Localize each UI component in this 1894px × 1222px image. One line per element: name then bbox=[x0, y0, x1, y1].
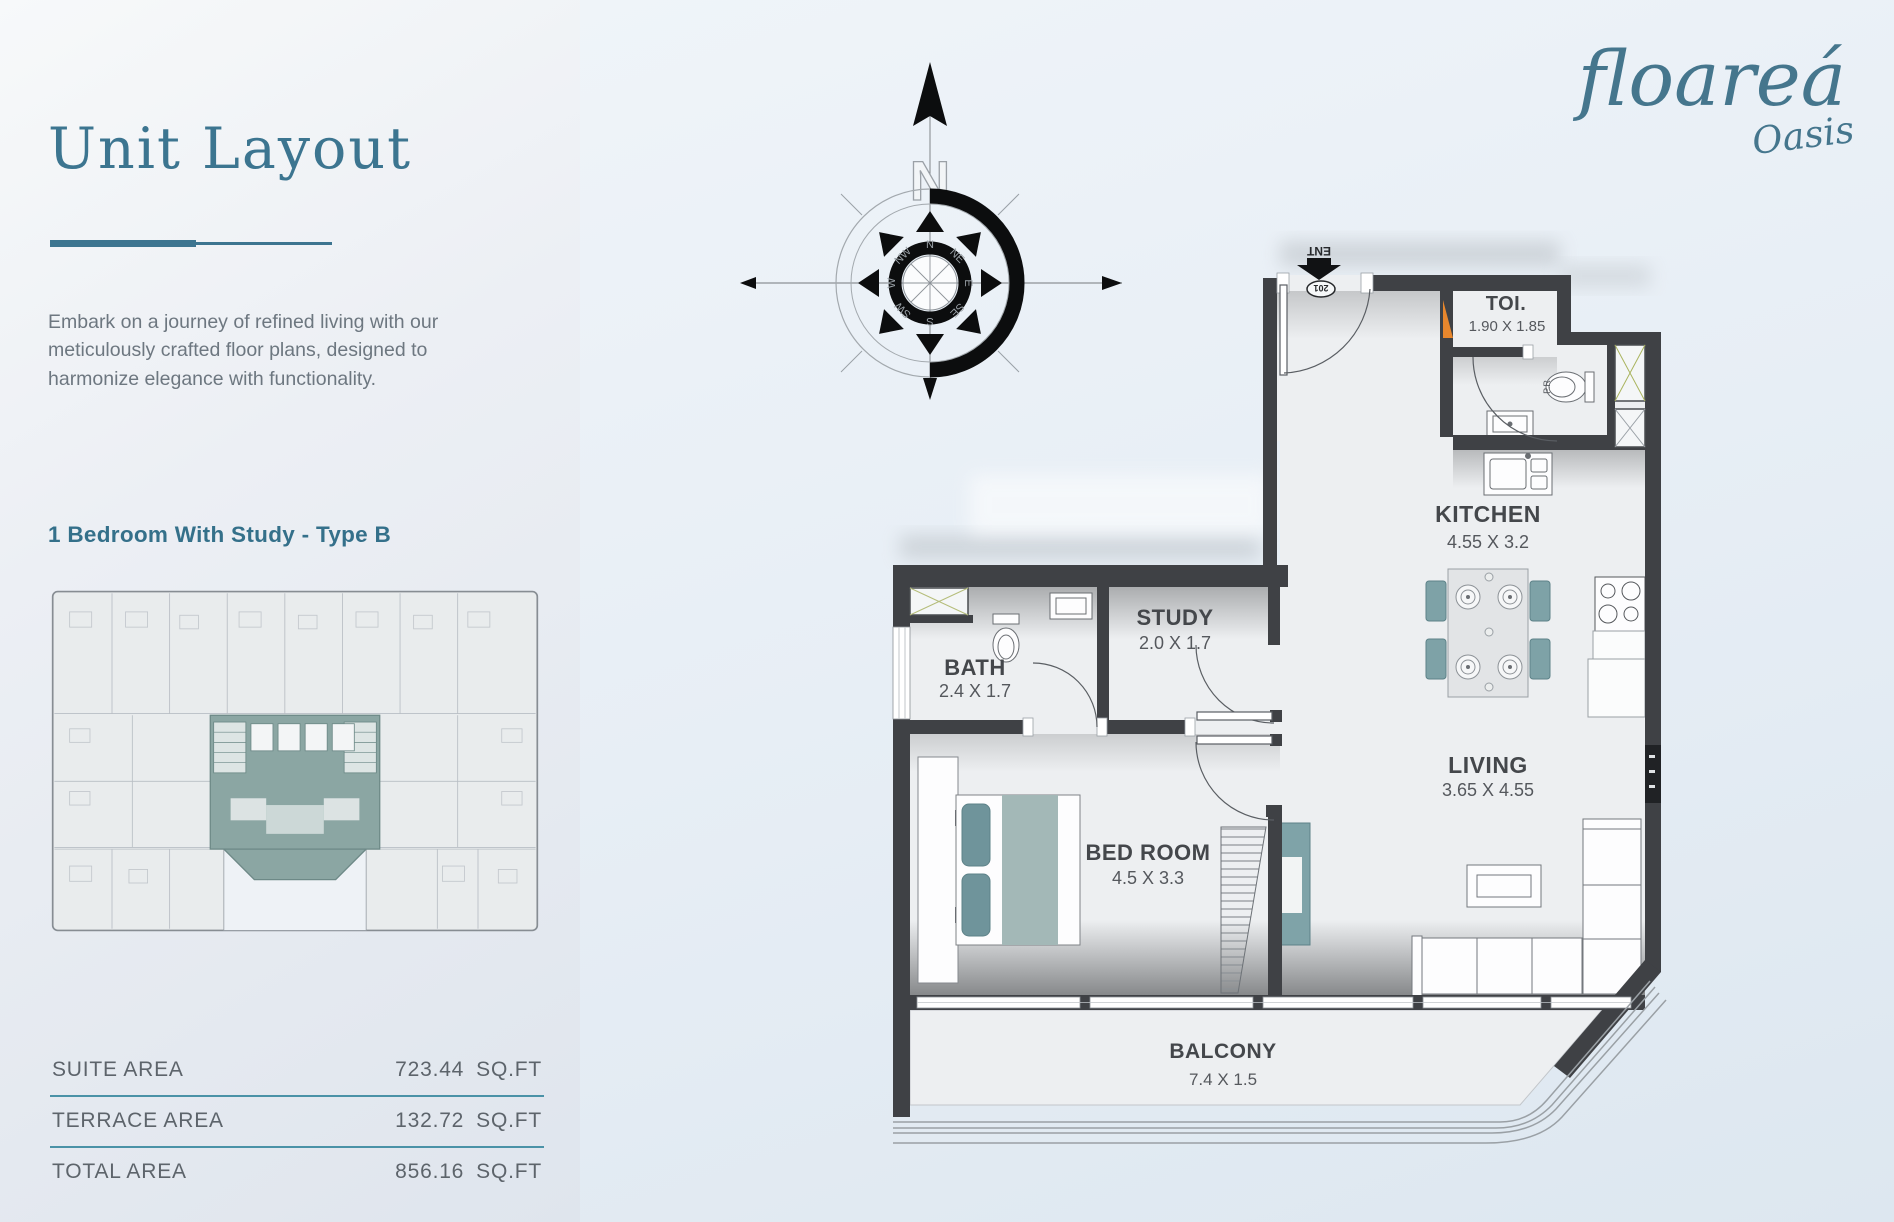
kitchen-dims: 4.55 X 3.2 bbox=[1447, 532, 1529, 552]
terrace-area-label: TERRACE AREA bbox=[52, 1109, 224, 1133]
intro-description: Embark on a journey of refined living wi… bbox=[48, 308, 500, 395]
sidebar: Unit Layout Embark on a journey of refin… bbox=[0, 0, 580, 1222]
kitchen-name: KITCHEN bbox=[1435, 501, 1541, 527]
coffee-table bbox=[1467, 865, 1541, 907]
stove bbox=[1595, 577, 1645, 631]
toi-dims: 1.90 X 1.85 bbox=[1469, 318, 1546, 335]
pr-toilet bbox=[1546, 372, 1594, 402]
kitchen-counter bbox=[1588, 631, 1645, 717]
total-area-value: 856.16 bbox=[395, 1160, 464, 1184]
pr-label: P.R bbox=[1542, 380, 1552, 394]
bath-washbasin bbox=[1050, 593, 1092, 619]
unit-floorplan: ENT 201 TOI. 1.90 X 1.85 P.R KITCHEN 4.5… bbox=[860, 225, 1720, 1215]
balcony-windows bbox=[917, 997, 1631, 1008]
unit-number-label: 201 bbox=[1313, 283, 1328, 293]
table-row-suite: SUITE AREA 723.44SQ.FT bbox=[50, 1046, 544, 1097]
suite-area-unit: SQ.FT bbox=[476, 1058, 542, 1082]
kitchen-sink bbox=[1484, 453, 1552, 495]
unit-type-heading: 1 Bedroom With Study - Type B bbox=[48, 522, 391, 548]
balcony-name: BALCONY bbox=[1169, 1040, 1276, 1063]
balcony-dims: 7.4 X 1.5 bbox=[1189, 1070, 1257, 1089]
suite-area-label: SUITE AREA bbox=[52, 1058, 184, 1082]
total-area-label: TOTAL AREA bbox=[52, 1160, 187, 1184]
living-name: LIVING bbox=[1448, 752, 1528, 778]
keyplan-core-highlight bbox=[210, 715, 379, 879]
study-dims: 2.0 X 1.7 bbox=[1139, 633, 1211, 653]
brand-logo-name: floareá bbox=[1578, 34, 1846, 123]
title-underline bbox=[50, 240, 332, 248]
underline-thick-segment bbox=[50, 240, 196, 247]
brand-logo: floareá Oasis bbox=[1524, 34, 1864, 184]
bath-name: BATH bbox=[944, 655, 1005, 680]
table-row-terrace: TERRACE AREA 132.72SQ.FT bbox=[50, 1097, 544, 1148]
bath-dims: 2.4 X 1.7 bbox=[939, 681, 1011, 701]
bedroom-name: BED ROOM bbox=[1086, 840, 1211, 865]
main-panel: N N NE E SE S SW W NW bbox=[580, 0, 1894, 1222]
suite-area-value: 723.44 bbox=[395, 1058, 464, 1082]
area-table: SUITE AREA 723.44SQ.FT TERRACE AREA 132.… bbox=[50, 1046, 544, 1197]
total-area-unit: SQ.FT bbox=[476, 1160, 542, 1184]
page-title: Unit Layout bbox=[48, 116, 412, 182]
pr-washbasin bbox=[1487, 411, 1533, 437]
bedroom-dims: 4.5 X 3.3 bbox=[1112, 868, 1184, 888]
underline-thin-segment bbox=[196, 242, 332, 245]
terrace-area-value: 132.72 bbox=[395, 1109, 464, 1133]
entry-label: ENT bbox=[1306, 244, 1331, 258]
living-dims: 3.65 X 4.55 bbox=[1442, 780, 1534, 800]
window-left-wall bbox=[893, 627, 910, 719]
right-wall-vent bbox=[1645, 745, 1661, 803]
toi-name: TOI. bbox=[1486, 293, 1527, 315]
terrace-area-unit: SQ.FT bbox=[476, 1109, 542, 1133]
study-name: STUDY bbox=[1136, 605, 1213, 630]
building-keyplan bbox=[44, 578, 546, 944]
table-row-total: TOTAL AREA 856.16SQ.FT bbox=[50, 1148, 544, 1197]
